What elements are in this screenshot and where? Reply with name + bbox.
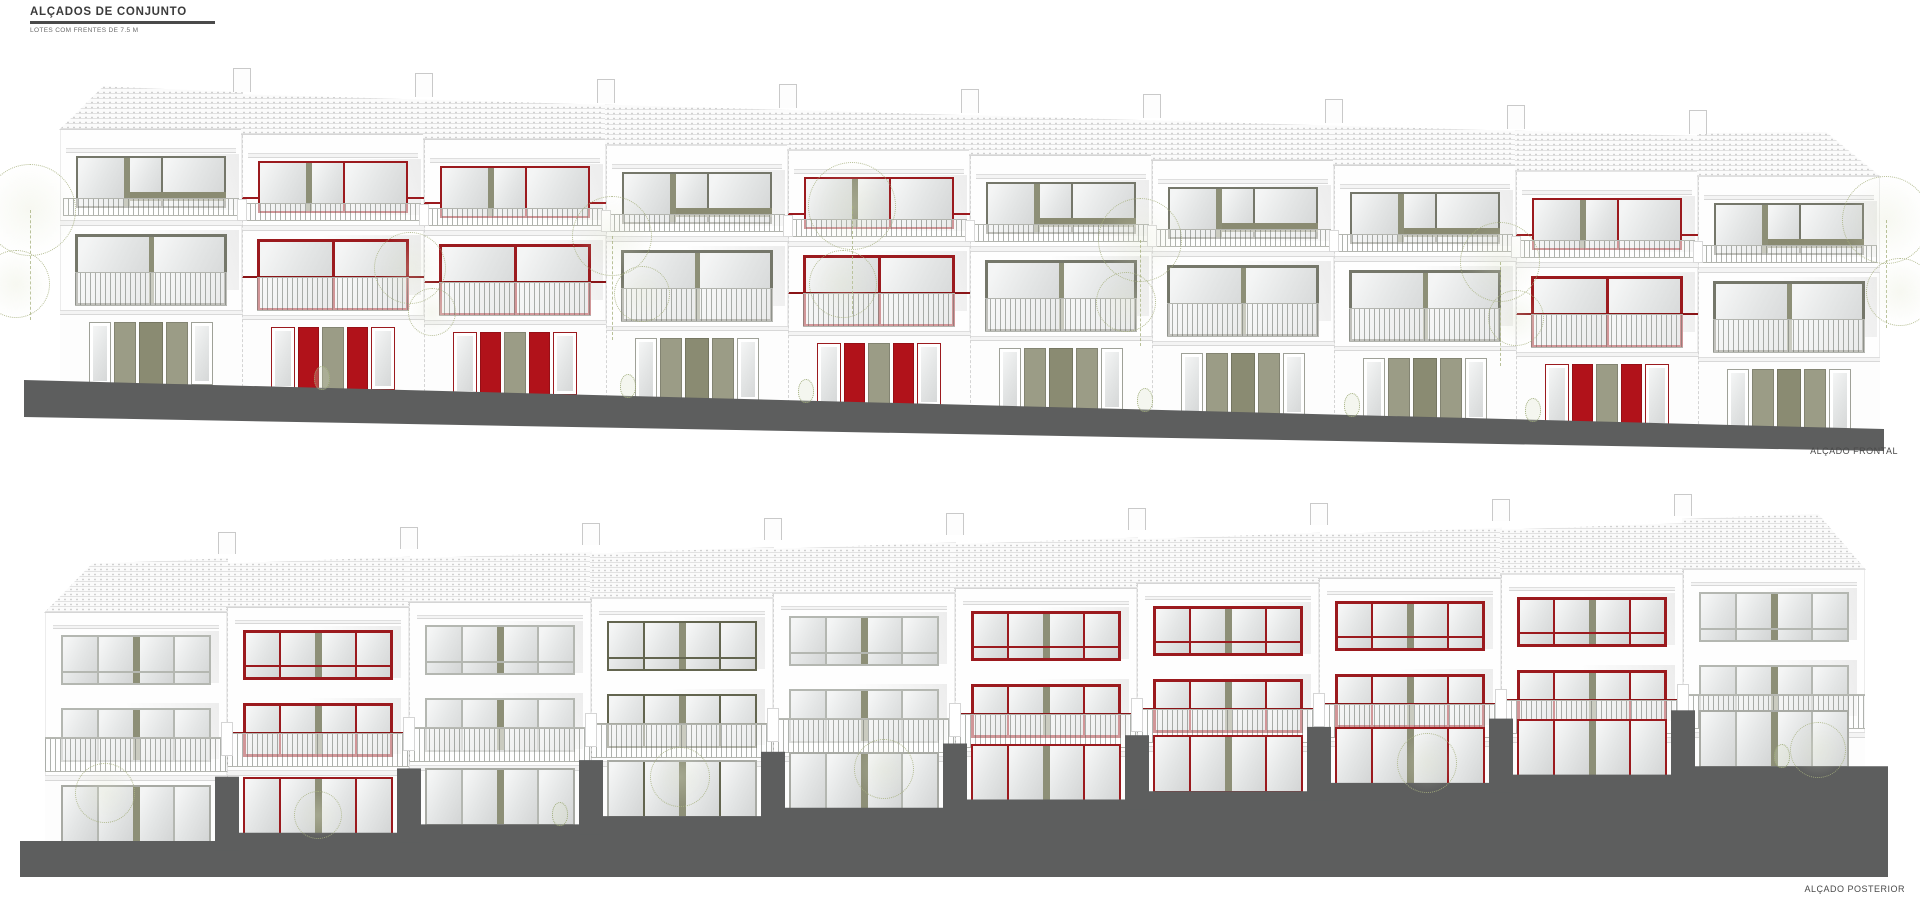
transom-bar [1156, 641, 1300, 643]
chimney [415, 73, 433, 97]
tile-roof [226, 552, 410, 608]
upper-railing [63, 198, 239, 216]
door-group [1363, 358, 1487, 421]
door-glass [1829, 369, 1851, 432]
shrub [1525, 398, 1541, 422]
balcony-divider [767, 708, 779, 742]
window-pane [322, 633, 355, 677]
door-glass [453, 332, 477, 395]
window-pane [1009, 746, 1043, 800]
door-group [635, 338, 759, 401]
party-wall-line [970, 156, 971, 408]
balcony-divider [965, 220, 975, 242]
door-group [89, 322, 213, 385]
window-pane [1596, 600, 1629, 644]
window-pane [645, 623, 679, 669]
window-pane [827, 618, 861, 664]
window-pane [1050, 614, 1083, 658]
upper-window-group [61, 635, 211, 685]
door-glass [817, 343, 841, 406]
front-unit-9 [1516, 60, 1698, 460]
canopy-slab [417, 615, 583, 619]
tree [1096, 272, 1156, 332]
chimney [779, 84, 797, 108]
window-pane [357, 779, 391, 833]
window-pane [791, 618, 825, 664]
transom-bar [609, 657, 755, 659]
door-panel [844, 343, 865, 406]
rear-elevation [0, 425, 1920, 905]
balcony-divider [221, 722, 233, 756]
tree [75, 763, 135, 823]
window-pane [427, 770, 461, 824]
window-pane [1631, 721, 1665, 775]
shrub [620, 374, 636, 398]
balcony-railing [1713, 319, 1865, 353]
balcony-divider [949, 703, 961, 737]
chimney [1492, 499, 1510, 521]
tree [809, 250, 877, 318]
party-wall-line [1319, 579, 1320, 783]
canopy-slab [1327, 591, 1493, 595]
tree [1488, 290, 1544, 346]
tile-roof [787, 106, 971, 151]
door-glass [1363, 358, 1385, 421]
tree [1790, 722, 1846, 778]
mullion [1043, 746, 1050, 800]
upper-window-group [243, 630, 393, 680]
window-pane [504, 770, 538, 824]
window-pane [1267, 609, 1300, 653]
chimney [582, 523, 600, 545]
door-glass [1727, 369, 1749, 432]
window-pane [973, 746, 1007, 800]
door-glass [371, 327, 395, 390]
transom-bar [1338, 636, 1482, 638]
rear-unit-7 [1137, 425, 1319, 905]
window-pane [1701, 594, 1735, 640]
tree-trunk [612, 236, 613, 340]
window-pane [1520, 600, 1553, 644]
drawing-title: ALÇADOS DE CONJUNTO [30, 6, 187, 18]
window-pane [609, 762, 643, 816]
upper-window-group [789, 616, 939, 666]
tree [854, 739, 914, 799]
canopy-slab [1145, 596, 1311, 600]
door-panel [1231, 353, 1255, 416]
door-panel [1388, 358, 1410, 421]
mullion [1043, 614, 1050, 658]
door-panel [139, 322, 163, 385]
window-pane [1085, 746, 1119, 800]
window-pane [99, 637, 133, 683]
tile-roof [1333, 121, 1517, 166]
tile-roof [44, 557, 228, 613]
canopy-slab [1158, 179, 1328, 184]
tile-roof [1136, 528, 1320, 584]
ground-door-group [971, 744, 1121, 802]
window-pane [1009, 614, 1042, 658]
upper-railing [1701, 245, 1877, 263]
tree [1397, 733, 1457, 793]
door-glass [1181, 353, 1203, 416]
shrub [1774, 744, 1790, 768]
balcony-divider [1677, 684, 1689, 718]
window-pane [539, 627, 573, 673]
door-panel [1804, 369, 1826, 432]
mullion [861, 618, 868, 664]
mullion [1225, 737, 1232, 791]
canopy-slab [612, 164, 782, 169]
window-pane [1232, 609, 1265, 653]
front-elevation [0, 60, 1920, 460]
balcony-divider [1329, 230, 1339, 252]
door-panel [1413, 358, 1437, 421]
mullion [1589, 721, 1596, 775]
canopy-slab [248, 153, 418, 158]
window-pane [357, 633, 390, 677]
floor-slab [1698, 267, 1880, 273]
party-wall-line [788, 151, 789, 403]
window-pane [686, 623, 720, 669]
canopy-slab [1509, 587, 1675, 591]
rear-unit-10 [1683, 425, 1865, 905]
window-pane [1191, 737, 1225, 791]
door-panel [1596, 364, 1619, 427]
canopy-slab [781, 606, 947, 610]
rear-unit-8 [1319, 425, 1501, 905]
door-glass [1465, 358, 1487, 421]
window-pane [140, 637, 174, 683]
canopy-slab [430, 158, 600, 163]
door-glass [917, 343, 941, 406]
door-panel [529, 332, 550, 395]
shrub [552, 802, 568, 826]
shrub [1137, 388, 1153, 412]
party-wall-line [1137, 584, 1138, 791]
window-pane [1155, 737, 1189, 791]
chimney [961, 89, 979, 113]
balcony-divider [237, 199, 247, 221]
upper-railing [245, 203, 421, 221]
tile-roof [1500, 519, 1684, 575]
tree [650, 747, 710, 807]
front-unit-3 [424, 60, 606, 460]
ground-door-group [1517, 719, 1667, 777]
door-panel [1572, 364, 1593, 427]
mullion [497, 770, 504, 824]
balcony-railing [1349, 308, 1501, 342]
mullion [1589, 600, 1596, 644]
party-wall-line [409, 603, 410, 824]
window-pane [140, 787, 174, 841]
canopy-slab [1691, 582, 1857, 586]
party-wall-line [1334, 166, 1335, 418]
door-glass [1545, 364, 1569, 427]
mullion [1771, 594, 1778, 640]
door-group [817, 343, 941, 406]
transom-bar [246, 665, 390, 667]
tree [1842, 176, 1920, 264]
window-pane [1337, 729, 1371, 783]
rear-elevation-label: ALÇADO POSTERIOR [1804, 884, 1905, 894]
door-group [1727, 369, 1851, 432]
balcony-railing [75, 272, 227, 306]
window-pane [1338, 604, 1371, 648]
window-pane [1778, 594, 1812, 640]
tile-roof [1682, 514, 1866, 570]
transom-bar [791, 652, 937, 654]
chimney [233, 68, 251, 92]
rear-unit-3 [409, 425, 591, 905]
tree [614, 266, 670, 322]
door-glass [635, 338, 657, 401]
rear-unit-1 [45, 425, 227, 905]
window-pane [791, 754, 825, 808]
door-panel [1621, 364, 1642, 427]
window-pane [1085, 614, 1118, 658]
party-wall-line [591, 599, 592, 817]
drawing-subtitle: LOTES COM FRENTES DE 7.5 M [30, 27, 138, 34]
window-pane [1267, 737, 1301, 791]
chimney [764, 518, 782, 540]
window-pane [175, 637, 209, 683]
rear-unit-9 [1501, 425, 1683, 905]
door-panel [480, 332, 501, 395]
party-wall-line [242, 135, 243, 387]
shrub [798, 379, 814, 403]
tile-roof [59, 85, 243, 130]
door-panel [868, 343, 891, 406]
window-pane [1191, 609, 1224, 653]
canopy-slab [1522, 190, 1692, 195]
door-glass [737, 338, 759, 401]
window-pane [721, 762, 755, 816]
door-group [1181, 353, 1305, 416]
window-pane [609, 623, 643, 669]
title-underline [30, 21, 215, 24]
door-group [1545, 364, 1669, 427]
canopy-slab [53, 625, 219, 629]
tile-roof [408, 547, 592, 603]
ground-door-group [1153, 735, 1303, 793]
floor-slab [60, 220, 242, 226]
door-panel [347, 327, 368, 390]
window-pane [903, 618, 937, 664]
window-pane [463, 770, 497, 824]
door-panel [893, 343, 914, 406]
mullion [497, 627, 504, 673]
drawing-sheet: { "title_block": { "heading": "ALÇADOS D… [0, 0, 1920, 920]
window-pane [1519, 721, 1553, 775]
door-group [453, 332, 577, 395]
door-panel [114, 322, 136, 385]
window-pane [1232, 737, 1266, 791]
chimney [597, 79, 615, 103]
window-pane [721, 623, 755, 669]
shrub [1344, 393, 1360, 417]
door-glass [89, 322, 111, 385]
window-pane [1631, 600, 1664, 644]
window-pane [974, 614, 1007, 658]
door-panel [660, 338, 682, 401]
door-panel [1752, 369, 1774, 432]
front-unit-7 [1152, 60, 1334, 460]
balcony-divider [585, 713, 597, 747]
transom-bar [974, 646, 1118, 648]
chimney [1310, 503, 1328, 525]
upper-window-group [1699, 592, 1849, 642]
canopy-slab [963, 601, 1129, 605]
transom-bar [63, 671, 209, 673]
tile-roof [1151, 116, 1335, 161]
window-pane [1555, 600, 1588, 644]
door-panel [1777, 369, 1801, 432]
door-panel [685, 338, 709, 401]
chimney [1507, 105, 1525, 129]
chimney [1143, 94, 1161, 118]
window-pane [1701, 712, 1735, 766]
door-glass [1283, 353, 1305, 416]
upper-window-group [1517, 597, 1667, 647]
door-group [271, 327, 395, 390]
tile-roof [969, 111, 1153, 156]
upper-window-group [425, 625, 575, 675]
canopy-slab [976, 174, 1146, 179]
balcony-railing [1167, 303, 1319, 337]
mullion [1225, 609, 1232, 653]
front-unit-1 [60, 60, 242, 460]
door-panel [712, 338, 734, 401]
balcony-divider [1693, 241, 1703, 263]
balcony-divider [403, 717, 415, 751]
tile-roof [772, 538, 956, 594]
rear-unit-5 [773, 425, 955, 905]
door-panel [1024, 348, 1046, 411]
transom-bar [1701, 628, 1847, 630]
balcony-railing [409, 728, 591, 762]
chimney [400, 527, 418, 549]
tile-roof [423, 95, 607, 140]
window-pane [1449, 604, 1482, 648]
window-pane [427, 627, 461, 673]
floor-slab [788, 241, 970, 247]
window-pane [245, 779, 279, 833]
window-pane [1737, 594, 1771, 640]
front-unit-5 [788, 60, 970, 460]
rear-unit-6 [955, 425, 1137, 905]
party-wall-line [773, 594, 774, 808]
mullion [133, 637, 140, 683]
balcony-divider [783, 215, 793, 237]
tile-roof [590, 543, 774, 599]
window-pane [1555, 721, 1589, 775]
chimney [218, 532, 236, 554]
chimney [1674, 494, 1692, 516]
chimney [946, 513, 964, 535]
rear-unit-4 [591, 425, 773, 905]
window-pane [868, 618, 902, 664]
chimney [1689, 110, 1707, 134]
upper-window-group [1335, 601, 1485, 651]
upper-window-group [607, 621, 757, 671]
window-pane [175, 787, 209, 841]
door-glass [191, 322, 213, 385]
tree [408, 288, 456, 336]
floor-slab [1516, 262, 1698, 268]
party-wall-line [955, 589, 956, 800]
balcony-railing [227, 733, 409, 767]
shrub [314, 366, 330, 390]
door-glass [1645, 364, 1669, 427]
door-glass [999, 348, 1021, 411]
tree [0, 250, 50, 318]
mullion [679, 623, 686, 669]
canopy-slab [66, 148, 236, 153]
window-pane [1156, 609, 1189, 653]
mullion [315, 633, 322, 677]
door-panel [1440, 358, 1462, 421]
window-pane [1737, 712, 1771, 766]
tile-roof [241, 90, 425, 135]
balcony-divider [1131, 698, 1143, 732]
party-wall-line [1698, 177, 1699, 429]
balcony-divider [1495, 689, 1507, 723]
balcony-divider [1313, 693, 1325, 727]
window-pane [1414, 604, 1447, 648]
canopy-slab [235, 620, 401, 624]
transom-bar [427, 661, 573, 663]
upper-window-group [1153, 606, 1303, 656]
window-pane [63, 637, 97, 683]
upper-railing [1519, 240, 1695, 258]
door-panel [1049, 348, 1073, 411]
balcony-divider [419, 204, 429, 226]
chimney [1128, 508, 1146, 530]
window-pane [1596, 721, 1630, 775]
door-glass [553, 332, 577, 395]
chimney [1325, 99, 1343, 123]
window-pane [504, 627, 538, 673]
tile-roof [1697, 132, 1881, 177]
party-wall-line [1683, 570, 1684, 767]
tile-roof [1318, 523, 1502, 579]
window-pane [281, 633, 314, 677]
floor-slab [242, 225, 424, 231]
door-panel [1258, 353, 1280, 416]
party-wall-line [227, 608, 228, 833]
window-pane [1050, 746, 1084, 800]
tree [294, 791, 342, 839]
door-panel [1076, 348, 1098, 411]
window-pane [1373, 604, 1406, 648]
canopy-slab [1340, 184, 1510, 189]
door-group [999, 348, 1123, 411]
transom-bar [1520, 632, 1664, 634]
party-wall-line [1501, 575, 1502, 775]
canopy-slab [599, 611, 765, 615]
window-pane [1813, 594, 1847, 640]
tile-roof [954, 533, 1138, 589]
mullion [1407, 604, 1414, 648]
tile-roof [605, 101, 789, 146]
door-panel [1206, 353, 1228, 416]
front-unit-10 [1698, 60, 1880, 460]
door-panel [504, 332, 527, 395]
balcony-railing [45, 738, 227, 772]
balcony-railing [439, 282, 591, 316]
window-pane [246, 633, 279, 677]
